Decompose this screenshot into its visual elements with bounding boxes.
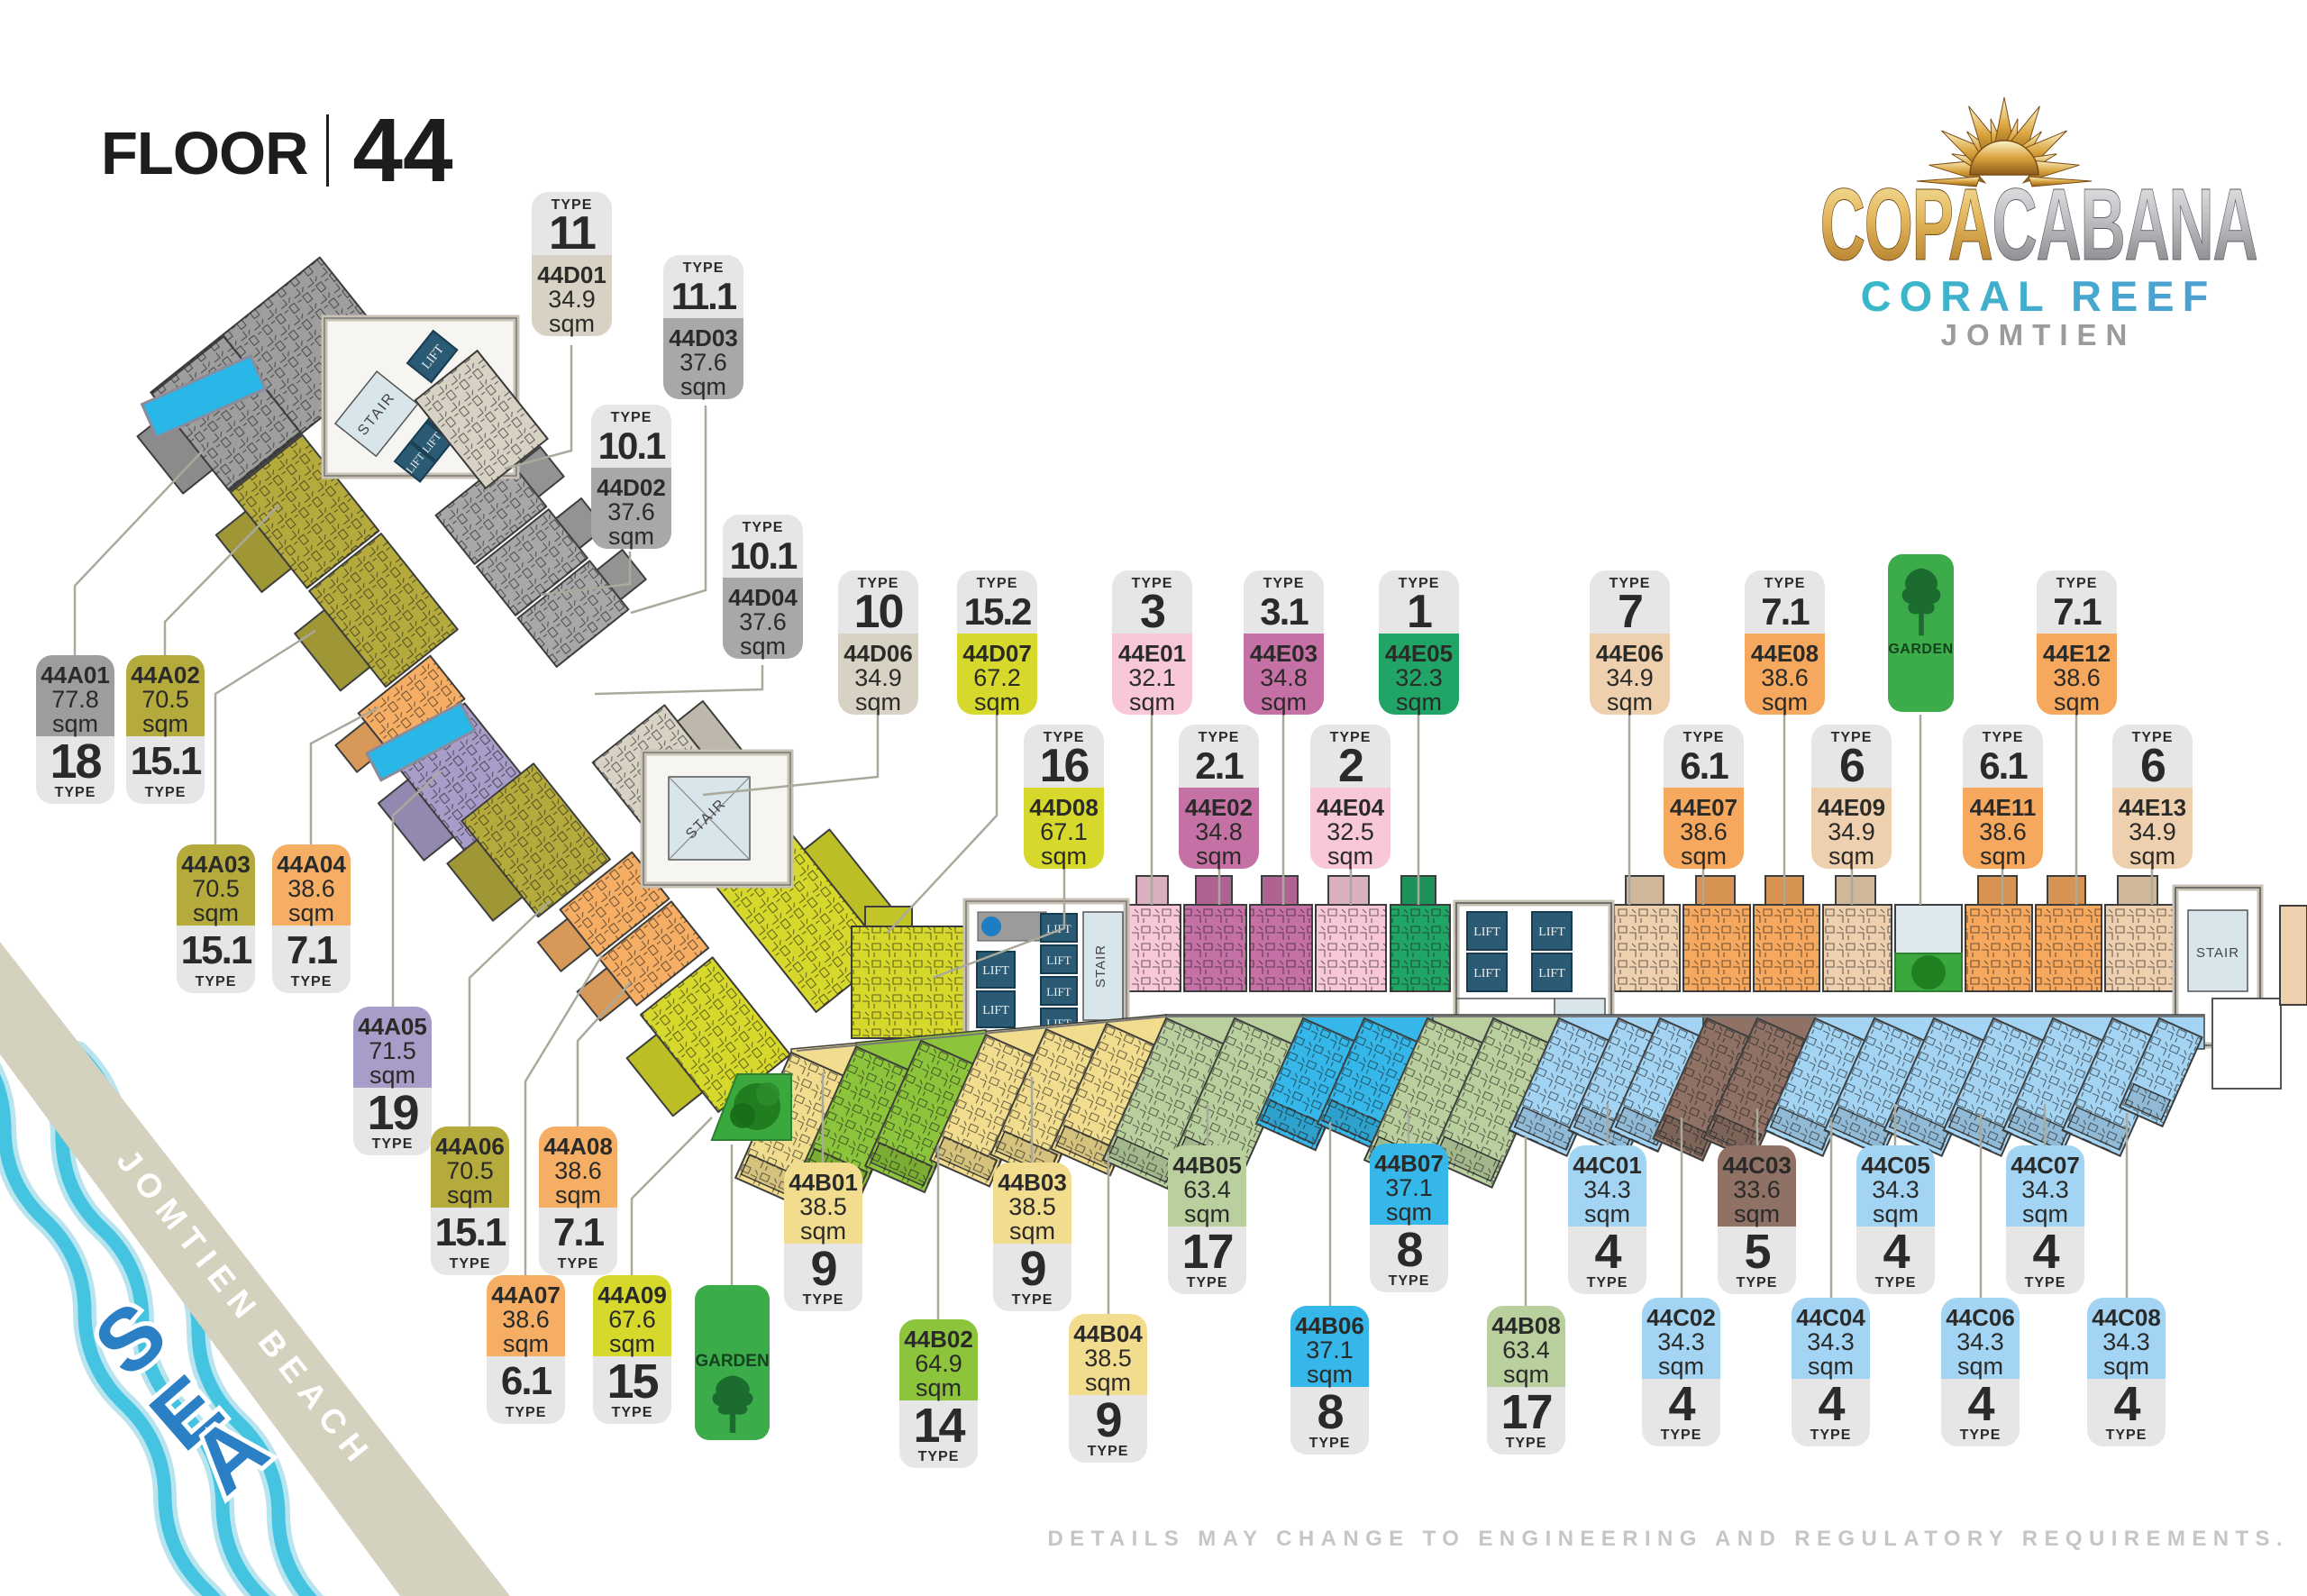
svg-text:LIFT: LIFT bbox=[1046, 953, 1071, 967]
svg-text:LIFT: LIFT bbox=[1473, 967, 1500, 980]
svg-text:CORAL REEF: CORAL REEF bbox=[1861, 272, 2217, 320]
svg-text:COPACABANA: COPACABANA bbox=[1820, 168, 2257, 281]
svg-text:LIFT: LIFT bbox=[1538, 967, 1565, 980]
svg-text:JOMTIEN: JOMTIEN bbox=[1941, 318, 2137, 351]
svg-text:LIFT: LIFT bbox=[982, 964, 1009, 978]
svg-text:LIFT: LIFT bbox=[1473, 926, 1500, 939]
svg-text:STAIR: STAIR bbox=[1093, 944, 1108, 988]
svg-text:STAIR: STAIR bbox=[2196, 945, 2239, 961]
svg-text:LIFT: LIFT bbox=[1538, 926, 1565, 939]
svg-text:LIFT: LIFT bbox=[1046, 985, 1071, 999]
svg-text:LIFT: LIFT bbox=[982, 1004, 1009, 1017]
